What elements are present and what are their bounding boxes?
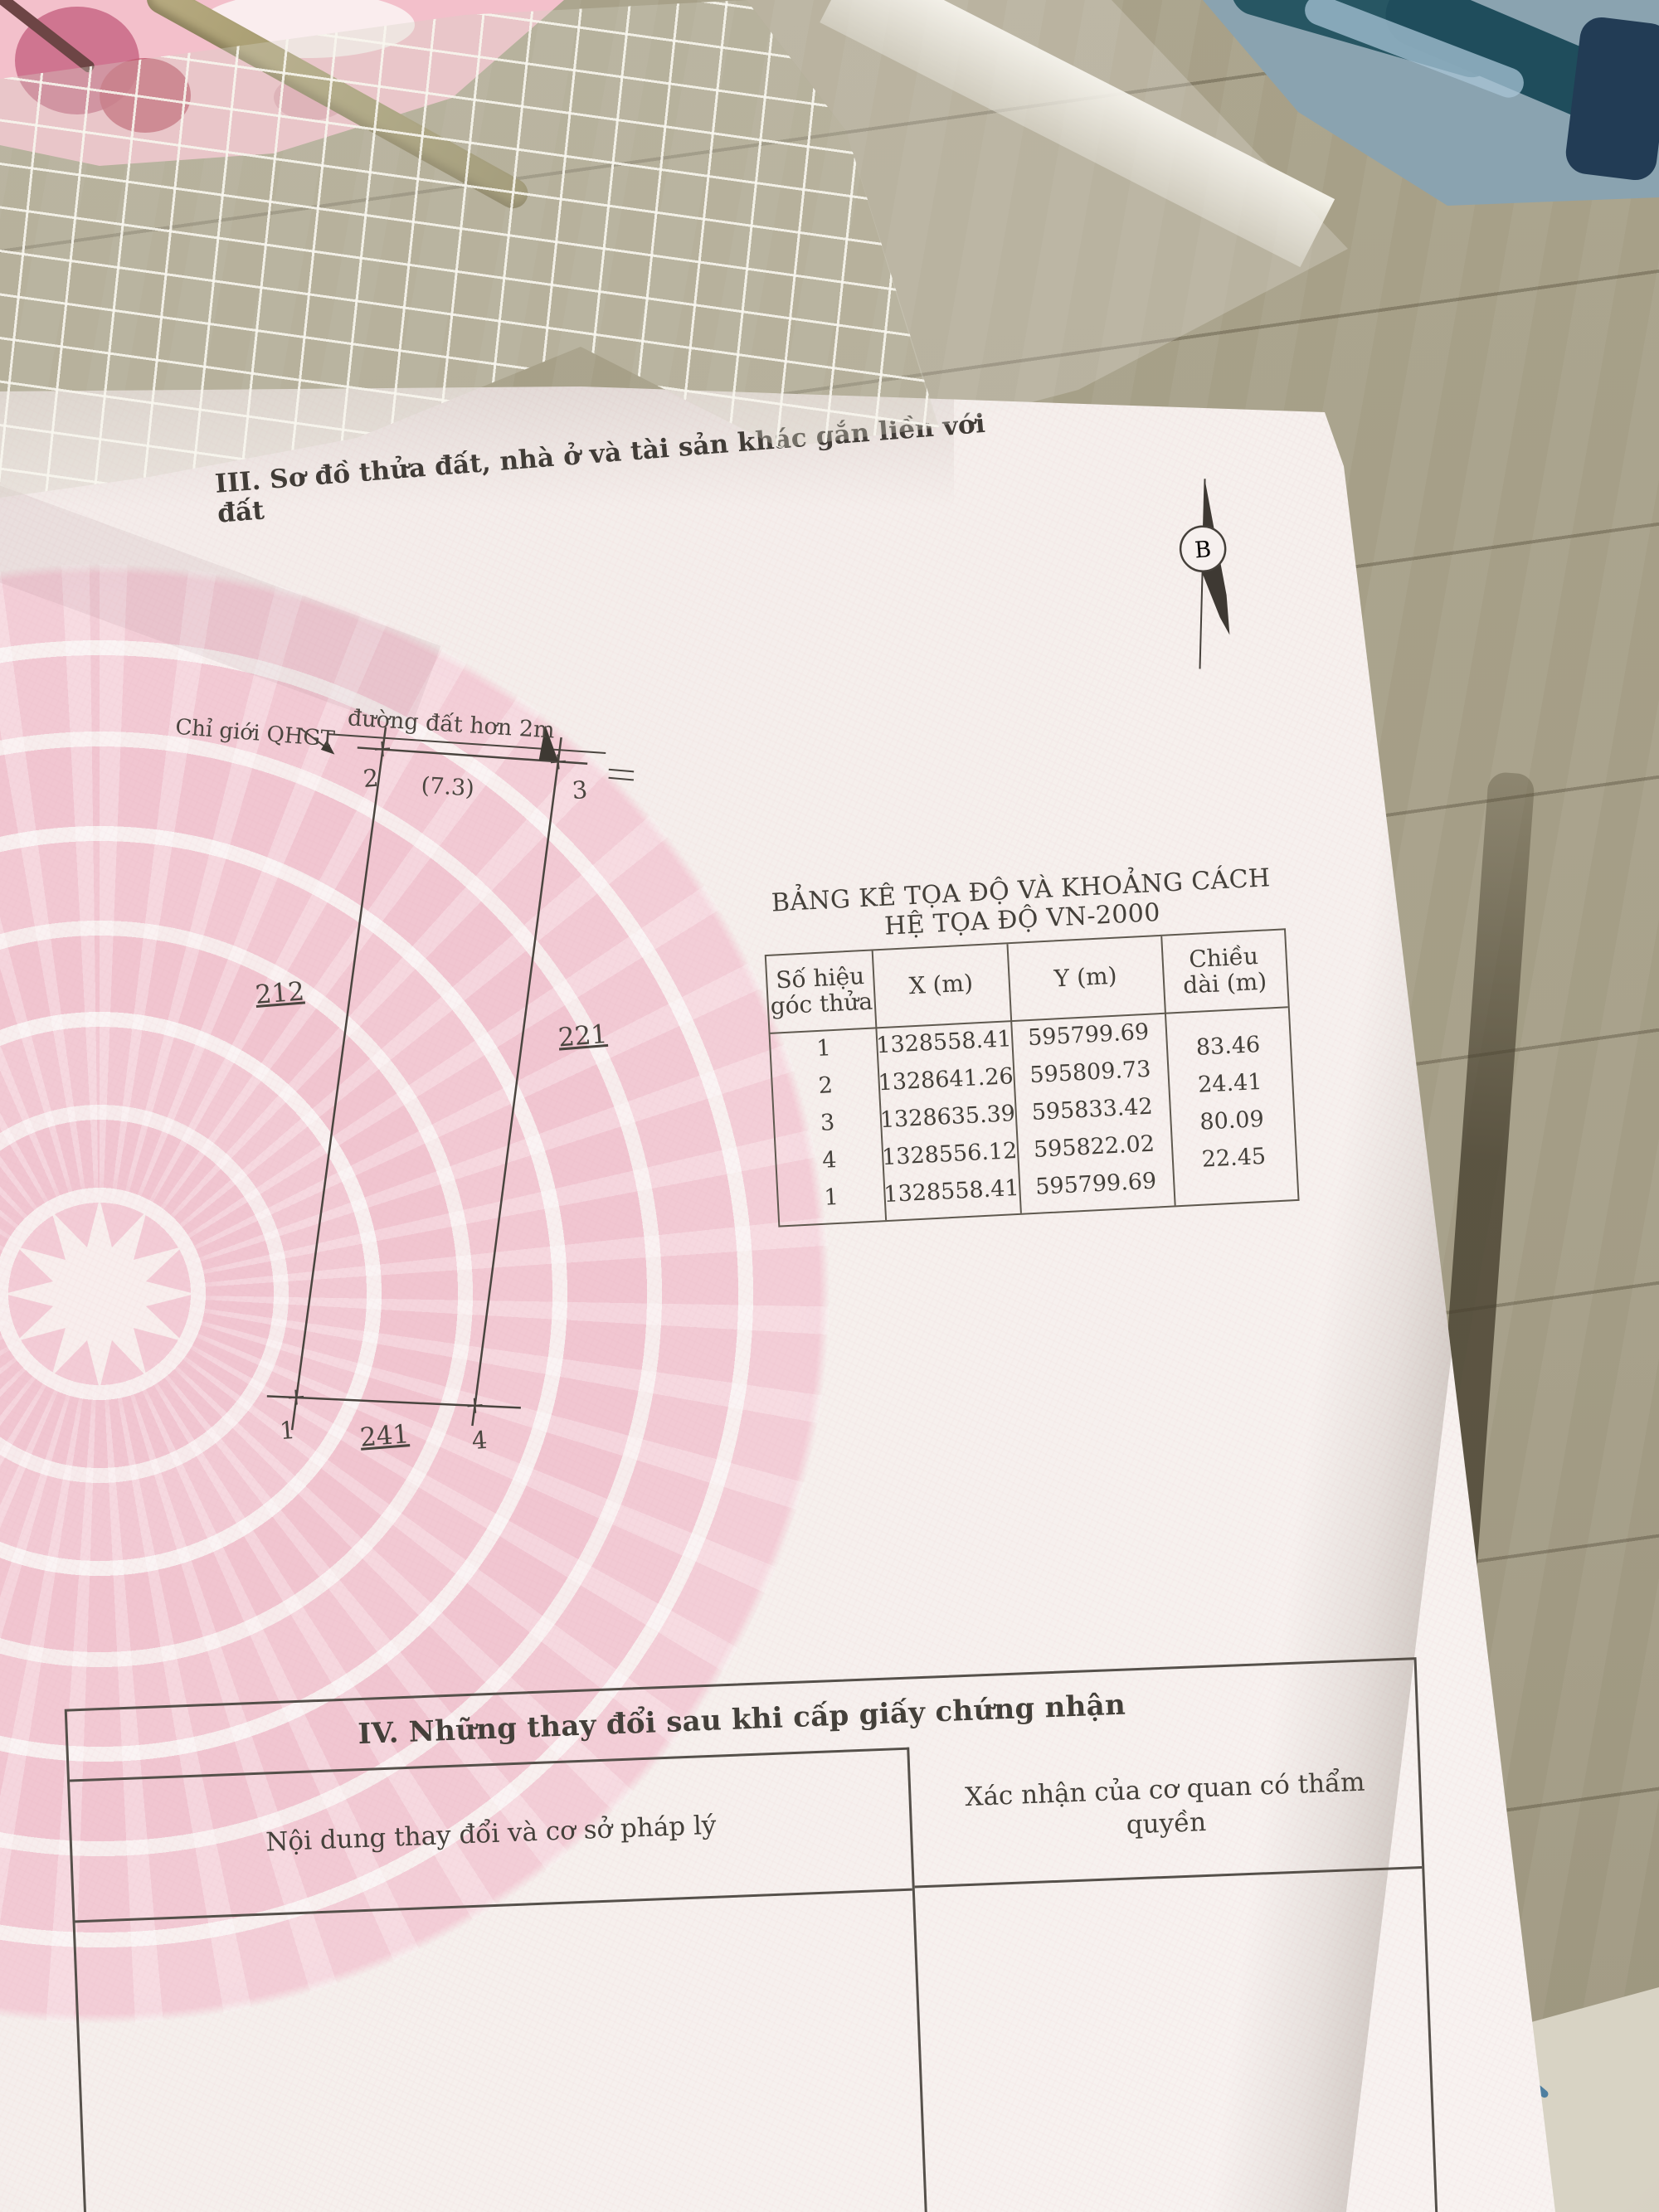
row-no: 1	[778, 1176, 885, 1218]
point-4-label: 4	[470, 1426, 488, 1455]
parcel-diagram: Chỉ giới QHGT đường đất hơn 2m 2 (7.3) 3…	[140, 671, 715, 1497]
header-corner-no: Số hiệu góc thửa	[766, 950, 875, 1032]
break-mark	[609, 775, 634, 781]
edge-2-1	[238, 727, 440, 1430]
point-2-label: 2	[362, 764, 379, 793]
photo-of-land-certificate: III. Sơ đồ thửa đất, nhà ở và tài sản kh…	[0, 0, 1659, 2212]
break-mark	[609, 767, 634, 773]
header-x: X (m)	[872, 944, 1010, 1027]
row-no: 3	[774, 1101, 881, 1144]
parcel-left-label: 212	[254, 976, 305, 1010]
edge-3-4	[419, 737, 615, 1426]
point-3-label: 3	[571, 775, 588, 805]
header-y: Y (m)	[1006, 936, 1164, 1019]
north-arrow: B	[1168, 472, 1242, 675]
row-no: 4	[776, 1139, 883, 1181]
row-no: 1	[770, 1027, 877, 1069]
vertex-ticks	[238, 727, 616, 1427]
north-label: B	[1194, 537, 1212, 563]
top-edge-length: (7.3)	[421, 773, 475, 802]
boundary-label: Chỉ giới QHGT	[174, 715, 336, 752]
point-1-label: 1	[279, 1416, 296, 1445]
row-x: 1328558.41	[883, 1169, 1019, 1213]
row-y: 595799.69	[1018, 1161, 1174, 1206]
row-no: 2	[772, 1064, 879, 1106]
parcel-right-label: 221	[557, 1019, 609, 1053]
parcel-bottom-label: 241	[359, 1419, 411, 1453]
